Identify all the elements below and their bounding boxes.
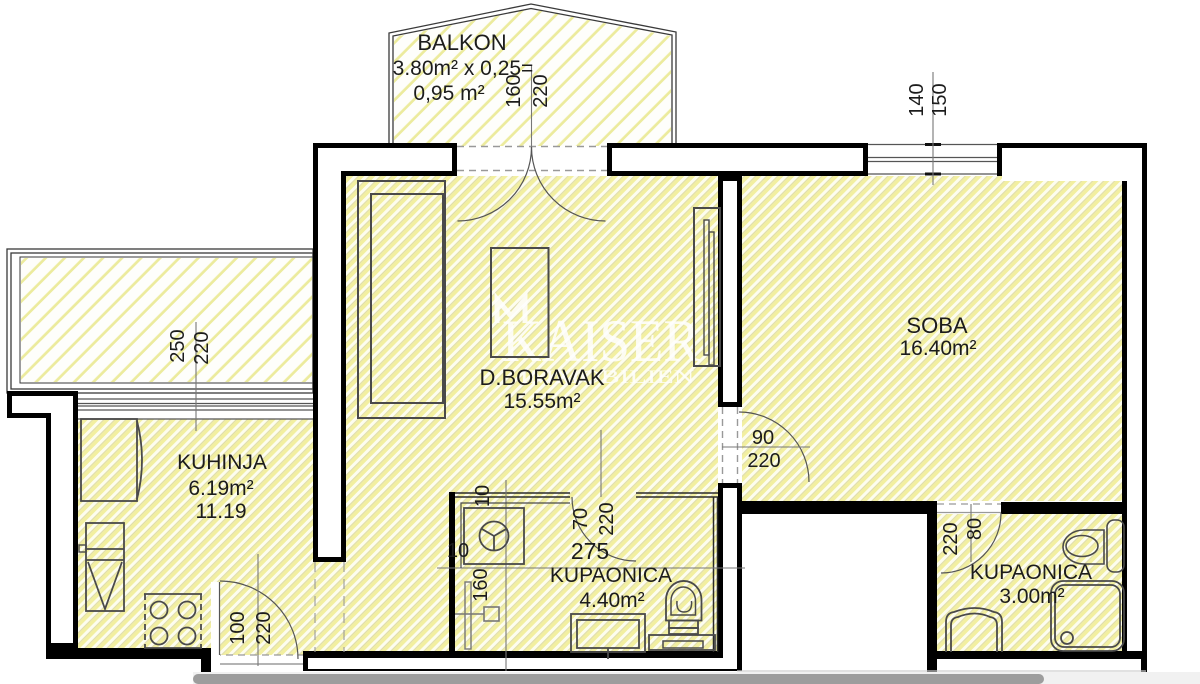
svg-text:16.40m²: 16.40m² xyxy=(899,337,976,360)
svg-text:KUHINJA: KUHINJA xyxy=(177,451,267,474)
svg-text:220: 220 xyxy=(530,74,552,107)
svg-text:KUPAONICA: KUPAONICA xyxy=(970,561,1092,584)
svg-text:220: 220 xyxy=(747,450,780,472)
svg-text:3.00m²: 3.00m² xyxy=(999,585,1064,608)
svg-text:220: 220 xyxy=(940,522,962,555)
svg-text:D.BORAVAK: D.BORAVAK xyxy=(479,365,604,390)
svg-text:220: 220 xyxy=(596,502,618,535)
svg-text:4.40m²: 4.40m² xyxy=(579,589,644,612)
svg-text:6.19m²: 6.19m² xyxy=(188,477,253,500)
svg-text:10: 10 xyxy=(447,540,469,562)
svg-text:275: 275 xyxy=(571,538,609,564)
svg-text:10: 10 xyxy=(472,485,494,507)
svg-text:80: 80 xyxy=(964,518,986,540)
svg-text:160: 160 xyxy=(503,74,525,107)
svg-text:100: 100 xyxy=(227,611,249,644)
svg-text:0,95 m²: 0,95 m² xyxy=(413,82,484,105)
svg-text:160: 160 xyxy=(470,568,492,601)
svg-text:250: 250 xyxy=(167,329,189,362)
svg-text:220: 220 xyxy=(253,611,275,644)
svg-text:BALKON: BALKON xyxy=(417,30,506,55)
svg-text:90: 90 xyxy=(752,427,774,449)
svg-text:15.55m²: 15.55m² xyxy=(503,390,580,413)
svg-text:220: 220 xyxy=(191,331,213,364)
svg-text:KUPAONICA: KUPAONICA xyxy=(550,564,672,587)
svg-text:11.19: 11.19 xyxy=(196,500,247,523)
svg-text:140: 140 xyxy=(906,83,928,116)
svg-text:150: 150 xyxy=(929,83,951,116)
svg-text:SOBA: SOBA xyxy=(906,313,967,338)
svg-text:70: 70 xyxy=(570,508,592,530)
